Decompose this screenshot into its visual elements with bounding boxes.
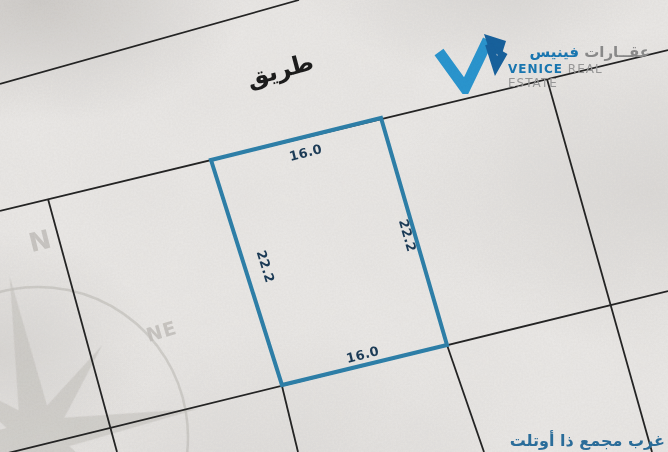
- plot-map-canvas: N NE طريق 16.0 16.0 22.2 22.2 غرب مجمع ذ…: [0, 0, 668, 452]
- brand-name-english-primary: VENICE: [508, 62, 563, 76]
- compass-rose-icon: [0, 248, 227, 452]
- brand-name-arabic-prefix: عقــارات: [584, 43, 650, 61]
- venice-logo-icon: [428, 26, 508, 94]
- brand-name-english: VENICE REAL ESTATE: [508, 62, 650, 90]
- brand-name-arabic: عقــارات فينيس: [508, 44, 650, 61]
- location-label: غرب مجمع ذا أوتلت: [510, 431, 665, 450]
- brand-logo-text: عقــارات فينيس VENICE REAL ESTATE: [508, 44, 650, 90]
- brand-logo: عقــارات فينيس VENICE REAL ESTATE: [428, 26, 660, 94]
- brand-name-arabic-highlight: فينيس: [530, 43, 579, 61]
